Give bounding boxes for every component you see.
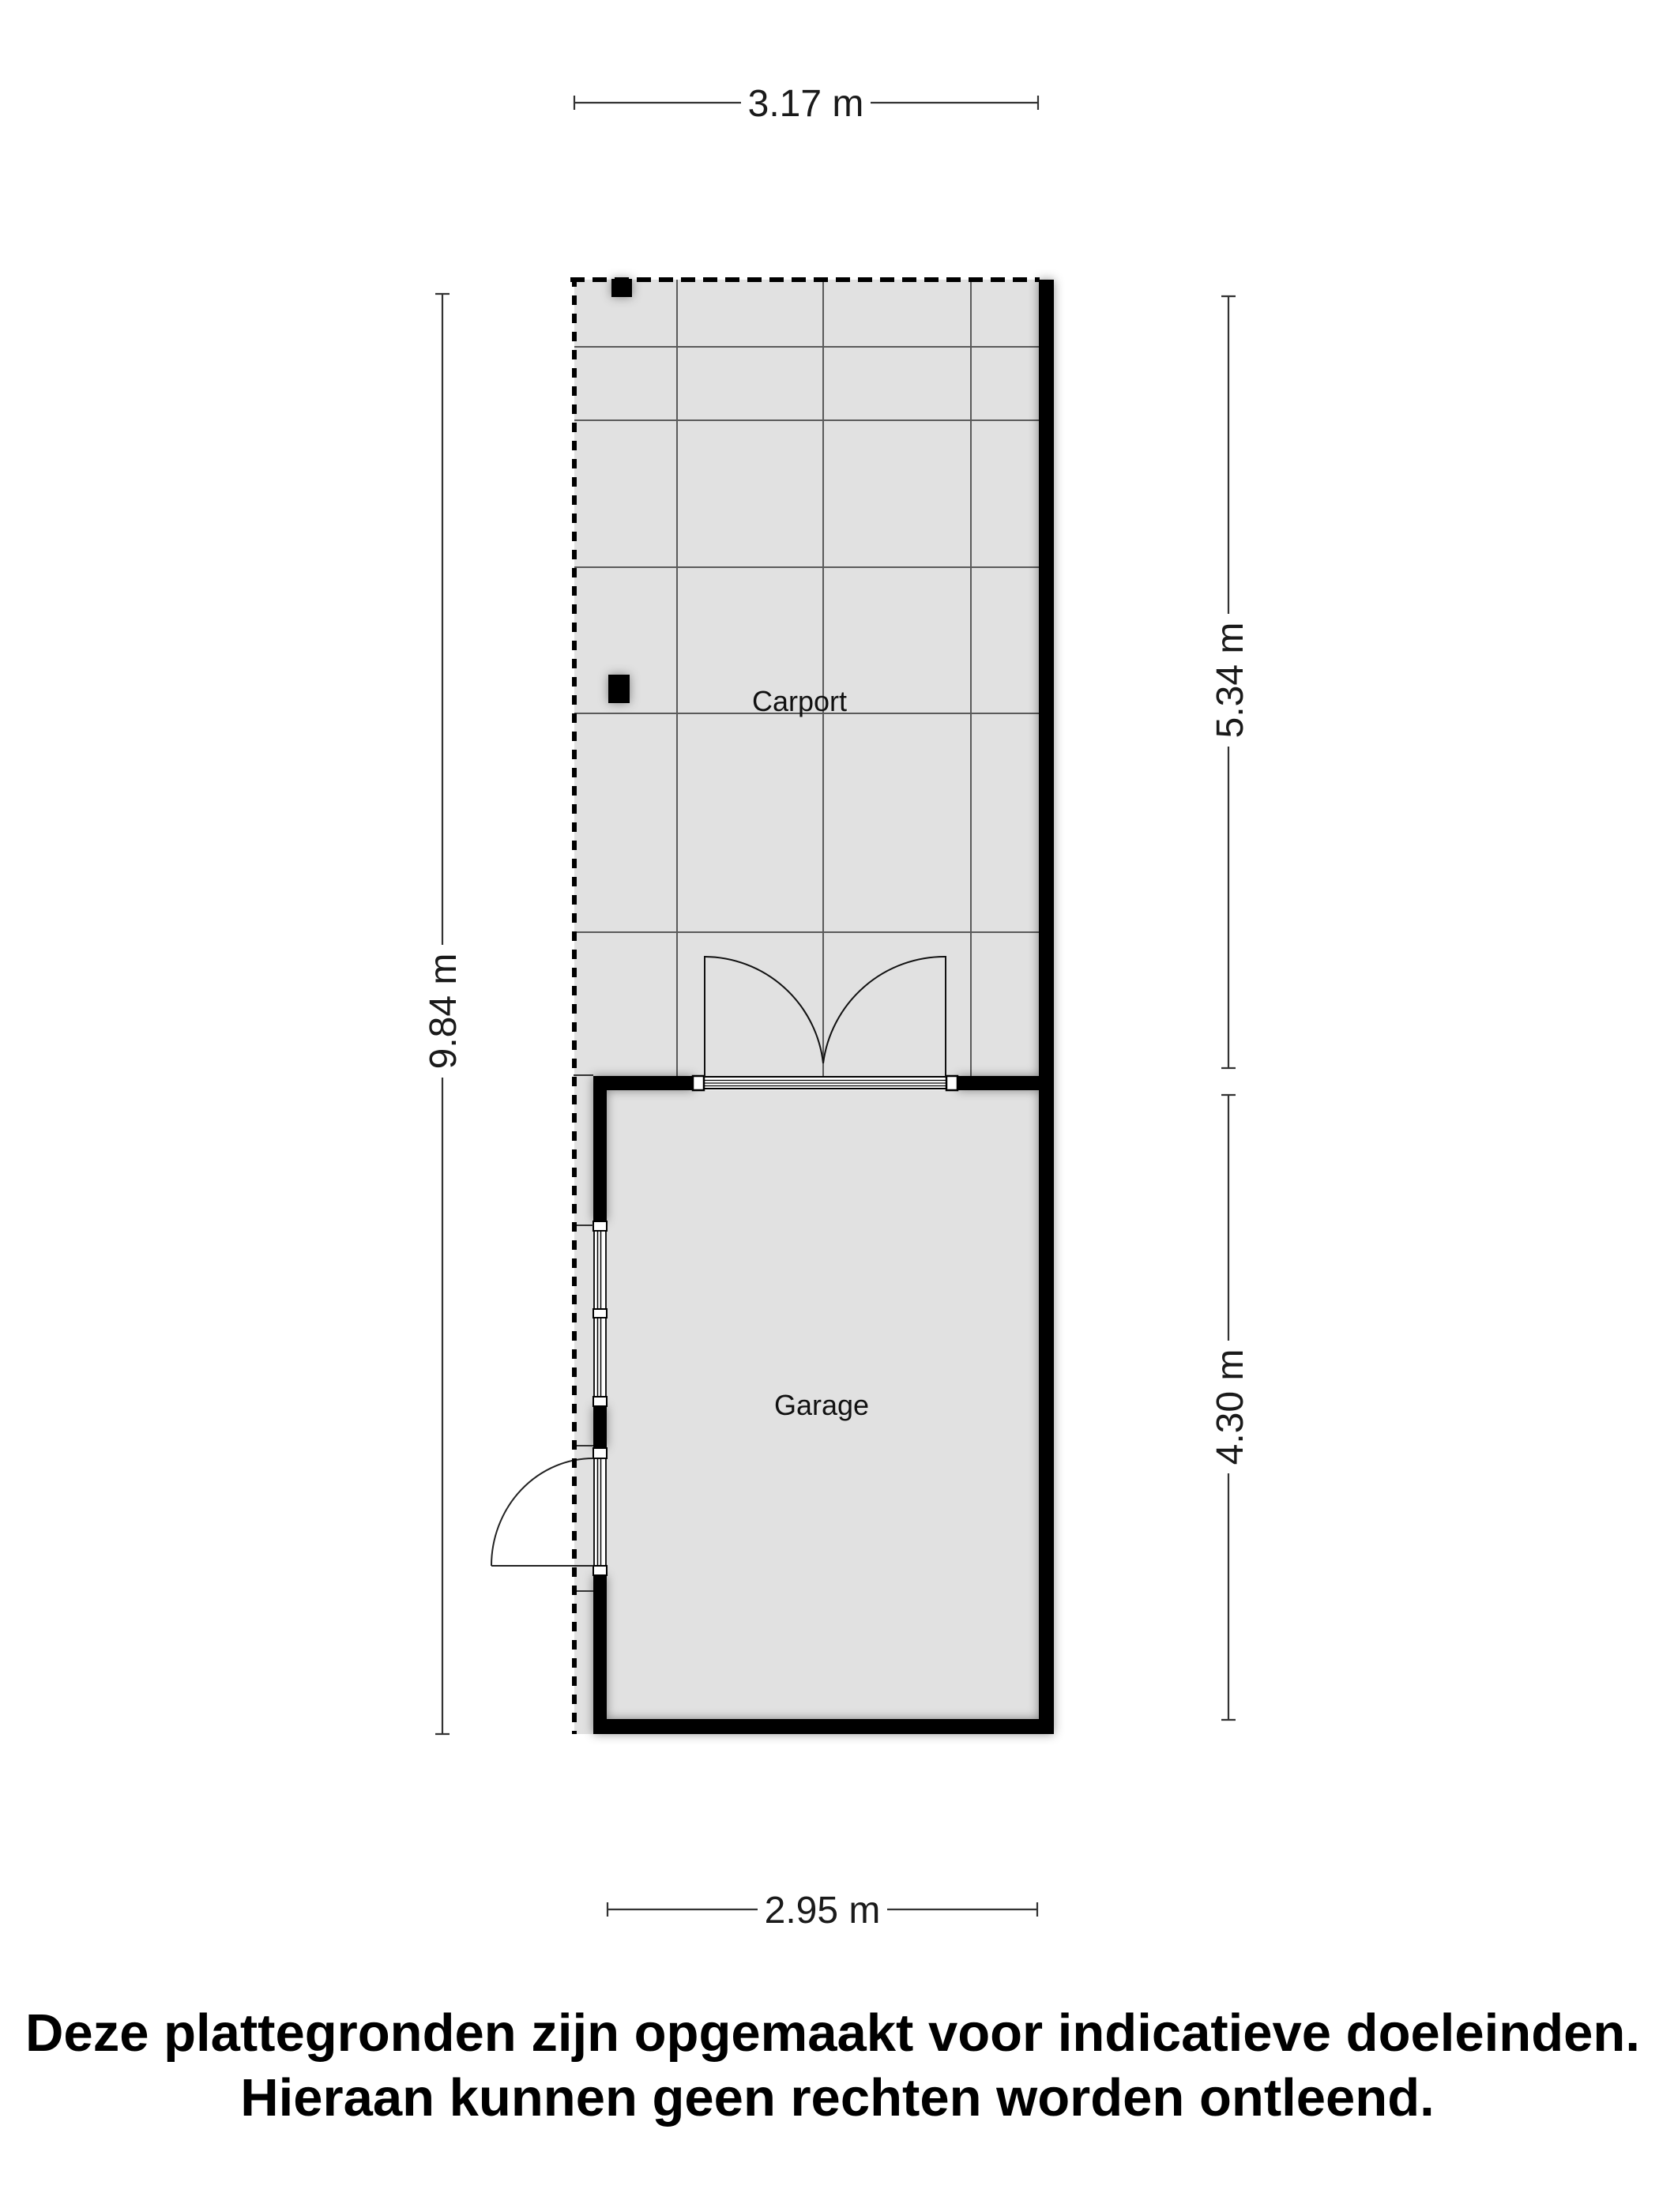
svg-text:Deze plattegronden zijn opgema: Deze plattegronden zijn opgemaakt voor i… (25, 2003, 1640, 2063)
svg-text:2.95 m: 2.95 m (765, 1890, 881, 1932)
svg-text:4.30 m: 4.30 m (1209, 1349, 1251, 1465)
svg-text:Carport: Carport (752, 685, 847, 717)
svg-text:3.17 m: 3.17 m (748, 83, 864, 125)
svg-text:Garage: Garage (774, 1389, 869, 1421)
svg-text:Hieraan kunnen geen rechten wo: Hieraan kunnen geen rechten worden ontle… (240, 2068, 1435, 2127)
svg-text:9.84 m: 9.84 m (423, 954, 465, 1070)
svg-text:5.34 m: 5.34 m (1209, 623, 1251, 739)
